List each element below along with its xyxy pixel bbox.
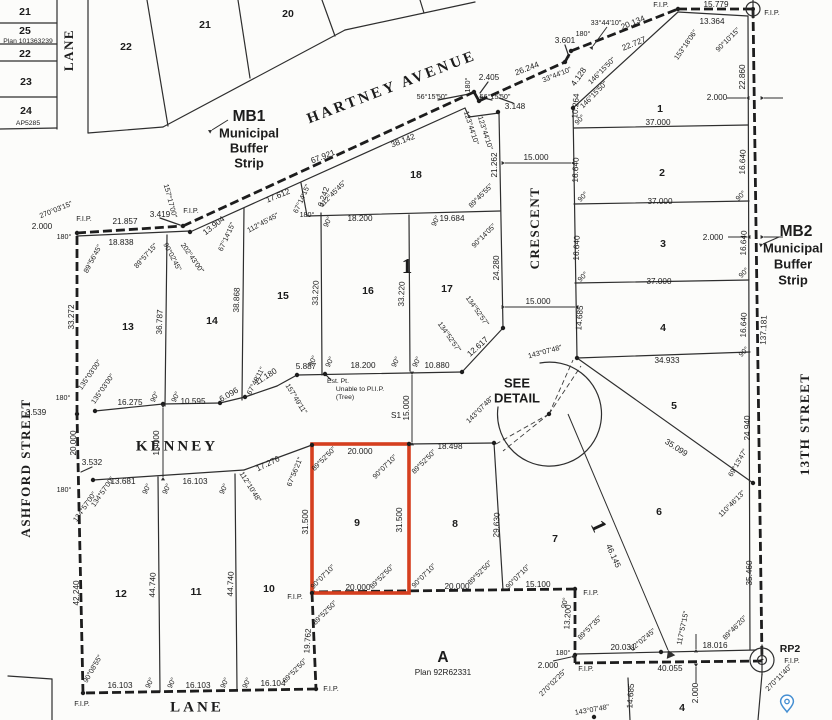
arrowhead [161, 405, 165, 408]
map-label: F.I.P. [76, 214, 91, 223]
map-label: 90° [165, 676, 178, 690]
street-name: HARTNEY AVENUE [305, 48, 479, 128]
map-label: 90° [143, 676, 156, 690]
map-label: 112°45'45" [245, 210, 280, 234]
map-label: 90° [323, 355, 336, 369]
lot-number: 21 [199, 19, 211, 31]
detail-radial-line [549, 366, 581, 414]
corner-monument-dot [75, 412, 79, 416]
map-label: 38.868 [232, 287, 242, 313]
lot-number: 6 [656, 506, 662, 518]
map-label: 18.016 [702, 641, 727, 650]
map-label: F.I.P. [784, 656, 799, 665]
boundary-line [312, 593, 316, 689]
map-label: 33°44'10" [541, 64, 573, 84]
map-label: F.I.P. [287, 592, 302, 601]
map-label: 89°45'55" [467, 181, 495, 209]
map-label: 270°11'40" [763, 662, 794, 693]
lot-line [345, 2, 475, 30]
survey-plat-map: HARTNEY AVENUELANELANEKENNEYCRESCENTASHF… [0, 0, 832, 720]
map-label: 90° [576, 189, 590, 203]
arrowhead [161, 477, 165, 480]
map-label: 35.460 [745, 560, 754, 585]
lot-number: 17 [441, 283, 453, 295]
lot-number: 14 [206, 315, 218, 327]
lot-line [147, 0, 168, 126]
dimension-arrow-line [593, 27, 607, 46]
lot-number: 13 [122, 321, 134, 333]
map-label: 2.000 [707, 93, 728, 102]
lot-line [242, 208, 244, 400]
map-label: 31.500 [301, 509, 310, 534]
map-label: F.I.P. [583, 588, 598, 597]
corner-monument-dot [563, 60, 567, 64]
map-label: 34.933 [654, 356, 679, 365]
map-label: 44.740 [148, 572, 158, 598]
corner-monument-dot [575, 356, 579, 360]
map-label: 89°52'50" [466, 558, 494, 586]
map-label: 143°07'48" [574, 702, 610, 717]
map-label: Buffer [774, 256, 812, 271]
map-label: 24.280 [492, 255, 501, 280]
lot-line [499, 113, 503, 328]
arrowhead [502, 161, 505, 165]
map-label: DETAIL [494, 390, 540, 405]
lot-number: 1 [402, 254, 413, 278]
map-label: 29.630 [492, 512, 502, 538]
map-label: 33.220 [311, 280, 321, 306]
map-label: 19.684 [439, 214, 464, 223]
lot-line [577, 358, 753, 483]
lot-line [235, 474, 237, 690]
lot-number: 18 [410, 169, 422, 181]
corner-monument-dot [501, 326, 505, 330]
map-label: F.I.P. [653, 0, 668, 9]
arrowhead [761, 96, 764, 100]
map-label: 90°07'10" [371, 452, 399, 480]
lot-line [165, 235, 167, 406]
location-pin-icon[interactable] [781, 695, 794, 712]
map-label: 202°43'00" [179, 241, 207, 275]
map-label: 44.740 [226, 571, 236, 597]
map-label: 117°57'15" [674, 610, 690, 646]
map-label: 90° [140, 482, 153, 496]
lot-number: 10 [263, 583, 275, 595]
map-label: F.I.P. [578, 664, 593, 673]
street-name: Est. Pt. [327, 378, 349, 385]
corner-monument-dot [91, 478, 95, 482]
map-label: 10.595 [180, 397, 205, 406]
map-label: 112°10'48" [238, 470, 264, 504]
map-label: 157°49'11" [284, 382, 310, 416]
map-label: Municipal [763, 240, 823, 255]
lot-number: 24 [20, 105, 32, 117]
arrowhead [208, 130, 212, 134]
map-label: 89°52'50" [410, 447, 438, 475]
map-label: 18.838 [108, 238, 133, 247]
map-label: 38.142 [390, 132, 417, 150]
map-label: 22.860 [738, 64, 747, 89]
map-label: 2.405 [479, 73, 500, 82]
street-name: Unable to Pl.I.P. [336, 386, 384, 393]
lot-line [238, 0, 250, 78]
map-canvas: HARTNEY AVENUELANELANEKENNEYCRESCENTASHF… [0, 0, 832, 720]
arrowhead [589, 46, 593, 50]
map-label: 16.275 [117, 398, 142, 407]
corner-monument-dot [492, 441, 496, 445]
street-name: Plan 101363239 [3, 38, 53, 45]
map-label: 16.103 [107, 681, 132, 690]
arrowhead [761, 235, 764, 239]
map-label: 16.640 [739, 312, 749, 338]
lot-number: 16 [362, 285, 374, 297]
map-label: 67.921 [310, 148, 337, 166]
lot-number: 12 [115, 588, 127, 600]
map-label: 137.181 [759, 315, 769, 345]
map-label: 20.134 [620, 14, 647, 32]
map-label: 18.498 [437, 442, 462, 451]
map-label: 90°14'05" [470, 221, 498, 249]
map-label: 110°46'13" [716, 488, 747, 519]
map-label: 143°07'48" [527, 342, 563, 360]
map-label: 2.000 [691, 682, 700, 703]
corner-monument-dot [310, 591, 314, 595]
map-label: Municipal [219, 125, 279, 140]
lot-number: 1 [657, 103, 663, 115]
street-name: AP5285 [16, 120, 40, 127]
map-label: 15.779 [703, 0, 728, 9]
map-label: 37.000 [647, 197, 672, 206]
map-label: 180° [300, 210, 315, 219]
lot-line [409, 215, 410, 371]
map-label: 90° [306, 354, 319, 368]
map-label: 20.000 [69, 430, 78, 455]
map-label: 180° [556, 648, 571, 657]
map-label: F.I.P. [764, 8, 779, 17]
lot-number: 22 [120, 41, 132, 53]
map-label: Strip [778, 272, 808, 287]
map-label: 16.103 [182, 477, 207, 486]
lot-number: 11 [190, 586, 201, 598]
lot-line [322, 0, 335, 36]
lot-number: 5 [671, 400, 677, 412]
map-label: MB1 [233, 108, 266, 125]
lot-number: 9 [354, 517, 360, 529]
map-label: 15.000 [152, 430, 161, 455]
map-label: 15.000 [523, 153, 548, 162]
map-label: F.I.P. [323, 684, 338, 693]
corner-monument-dot [547, 412, 551, 416]
map-label: 33.272 [67, 304, 76, 329]
map-label: 89°57'35" [576, 613, 604, 641]
map-label: 16.640 [739, 230, 749, 256]
lot-number: 3 [660, 238, 666, 250]
map-label: 153°18'06" [672, 27, 700, 61]
map-label: 134°52'57" [436, 320, 464, 354]
corner-monument-dot [93, 409, 97, 413]
map-label: 22.727 [621, 35, 648, 53]
map-label: 90°07'10" [410, 561, 438, 589]
corner-monument-dot [472, 90, 476, 94]
map-label: Plan 92R62331 [415, 668, 472, 677]
arrowhead [502, 305, 505, 309]
map-label: 90° [218, 676, 231, 690]
map-label: 16.640 [571, 157, 581, 183]
map-label: 26.244 [514, 60, 541, 78]
map-label: 180° [463, 77, 472, 92]
map-label: SEE [504, 375, 530, 390]
lot-line [0, 128, 57, 129]
map-label: 3.419 [150, 210, 171, 219]
corner-monument-dot [310, 443, 314, 447]
map-label: 42.240 [72, 580, 81, 605]
lot-line [678, 12, 748, 16]
map-label: 40.055 [657, 664, 682, 673]
map-label: 180° [57, 232, 72, 241]
map-label: 19.762 [302, 628, 313, 654]
map-label: 2.000 [538, 661, 559, 670]
corner-monument-dot [314, 687, 318, 691]
map-label: 2.000 [703, 233, 724, 242]
street-name: ASHFORD STREET [18, 398, 33, 537]
lot-number: 21 [19, 6, 31, 18]
map-label: 69°13'47" [726, 447, 749, 479]
map-label: 21.262 [490, 152, 499, 177]
street-name: LANE [61, 29, 76, 71]
map-label: 37.000 [645, 118, 670, 127]
map-label: 89°57'15" [132, 241, 160, 270]
lot-line [8, 676, 52, 679]
corner-monument-dot [496, 110, 500, 114]
lot-number: 4 [660, 322, 666, 334]
corner-monument-dot [573, 587, 577, 591]
lot-number: 25 [19, 25, 31, 37]
corner-monument-dot [243, 395, 247, 399]
map-label: 62°02'45" [628, 626, 658, 653]
map-label: 90° [559, 597, 570, 609]
street-name: LANE [170, 699, 224, 715]
map-label: 17.276 [255, 454, 282, 473]
map-label: 89°56'45" [81, 243, 104, 275]
detail-radial-line [549, 360, 573, 414]
map-label: 90° [240, 676, 253, 690]
lot-number: 20 [282, 8, 294, 20]
map-label: S1 [391, 411, 401, 420]
map-label: 10.880 [424, 361, 449, 370]
corner-monument-dot [81, 691, 85, 695]
lot-line [88, 127, 163, 133]
street-name: KENNEY [136, 438, 218, 454]
fip-marker-center [751, 7, 755, 11]
lot-line [321, 213, 322, 375]
boundary-line [575, 661, 762, 663]
map-label: 56°15'50" [480, 92, 511, 101]
map-label: Buffer [230, 140, 268, 155]
corner-monument-dot [676, 7, 680, 11]
map-label: 13.364 [699, 17, 724, 26]
map-label: 18.200 [350, 361, 375, 370]
lot-line [758, 674, 762, 720]
corner-monument-dot [181, 224, 185, 228]
map-label: 90° [321, 215, 334, 229]
lot-number: 4 [679, 702, 685, 714]
map-label: 4.128 [569, 65, 588, 87]
map-label: 180° [56, 393, 71, 402]
corner-monument-dot [569, 49, 573, 53]
map-label: 3.601 [555, 36, 576, 45]
map-label: 90° [410, 355, 423, 369]
street-name: 13TH STREET [797, 373, 812, 476]
arrowhead [694, 664, 698, 667]
lot-number: RP2 [780, 643, 801, 655]
lot-number: 1 [586, 516, 612, 536]
dimension-arrow-line [568, 414, 668, 650]
map-label: 2.000 [32, 222, 53, 231]
map-label: F.I.P. [183, 206, 198, 215]
lot-line [420, 0, 424, 13]
map-label: 3.532 [82, 458, 103, 467]
map-label: MB2 [780, 223, 813, 240]
map-label: 143°07'48" [464, 394, 495, 425]
map-label: 90° [160, 482, 173, 496]
map-label: 35.099 [663, 437, 689, 458]
map-label: 90°10'15" [714, 25, 742, 53]
map-label: Strip [234, 155, 264, 170]
street-name: CRESCENT [527, 187, 542, 270]
map-label: 14.685 [625, 683, 636, 709]
map-label: 56°15'50" [417, 92, 448, 101]
map-label: 90° [217, 482, 230, 496]
corner-monument-dot [188, 230, 192, 234]
map-label: 37.000 [646, 277, 671, 286]
map-label: 3.539 [26, 408, 47, 417]
corner-monument-dot [295, 373, 299, 377]
map-label: 24.940 [743, 415, 752, 440]
map-label: 180° [576, 29, 591, 38]
map-label: 15.100 [525, 580, 550, 589]
lot-number: 22 [19, 48, 31, 60]
map-label: 90°08'55" [81, 653, 104, 685]
corner-monument-dot [751, 481, 755, 485]
map-label: 90° [148, 390, 161, 404]
map-label: 46.145 [604, 543, 623, 570]
lot-line [158, 477, 160, 692]
map-label: 270°02'25" [537, 667, 568, 698]
map-label: 16.103 [185, 681, 210, 690]
map-label: F.I.P. [74, 699, 89, 708]
lot-line [307, 211, 500, 216]
map-label: 180° [57, 485, 72, 494]
map-label: 89°52'50" [281, 656, 309, 684]
map-label: 89°52'50" [368, 562, 396, 590]
map-label: 270°03'15" [38, 199, 74, 221]
lot-number: 8 [452, 518, 458, 530]
corner-monument-dot [460, 370, 464, 374]
map-label: 134°52'57" [464, 294, 492, 328]
map-label: 21.857 [112, 217, 137, 226]
map-label: 31.500 [395, 507, 404, 532]
map-label: 33°44'10" [591, 18, 622, 27]
map-label: 33.220 [397, 281, 407, 307]
map-label: 67°56'21" [285, 455, 305, 487]
street-name: (Tree) [336, 394, 354, 401]
map-label: 16.640 [738, 149, 748, 175]
map-label: 3.148 [505, 102, 526, 111]
corner-monument-dot [407, 442, 411, 446]
map-label: 16.640 [572, 235, 582, 261]
corner-monument-dot [75, 231, 79, 235]
map-label: 36.787 [155, 309, 165, 335]
lot-line [577, 650, 756, 654]
corner-monument-dot [592, 715, 596, 719]
map-label: 90° [389, 355, 402, 369]
map-label: 15.000 [525, 297, 550, 306]
map-label: A [437, 649, 448, 666]
lot-number: 2 [659, 167, 665, 179]
lot-number: 15 [277, 290, 289, 302]
map-label: 20.000 [444, 582, 469, 591]
map-label: 20.000 [347, 447, 372, 456]
lot-number: 7 [552, 533, 558, 545]
map-label: 89°52'50" [311, 598, 339, 626]
lot-number: 23 [20, 76, 32, 88]
detail-radial-line [503, 414, 549, 451]
map-label: 89°46'20" [721, 613, 749, 641]
lot-line [748, 16, 750, 650]
map-label: 90° [576, 269, 590, 283]
corner-monument-dot [323, 372, 327, 376]
map-label: 14.685 [574, 305, 585, 331]
corner-monument-dot [659, 650, 663, 654]
map-label: 17.612 [265, 187, 292, 205]
map-label: 15.000 [402, 395, 411, 420]
lot-line [81, 467, 92, 472]
map-label: 18.200 [347, 214, 372, 223]
